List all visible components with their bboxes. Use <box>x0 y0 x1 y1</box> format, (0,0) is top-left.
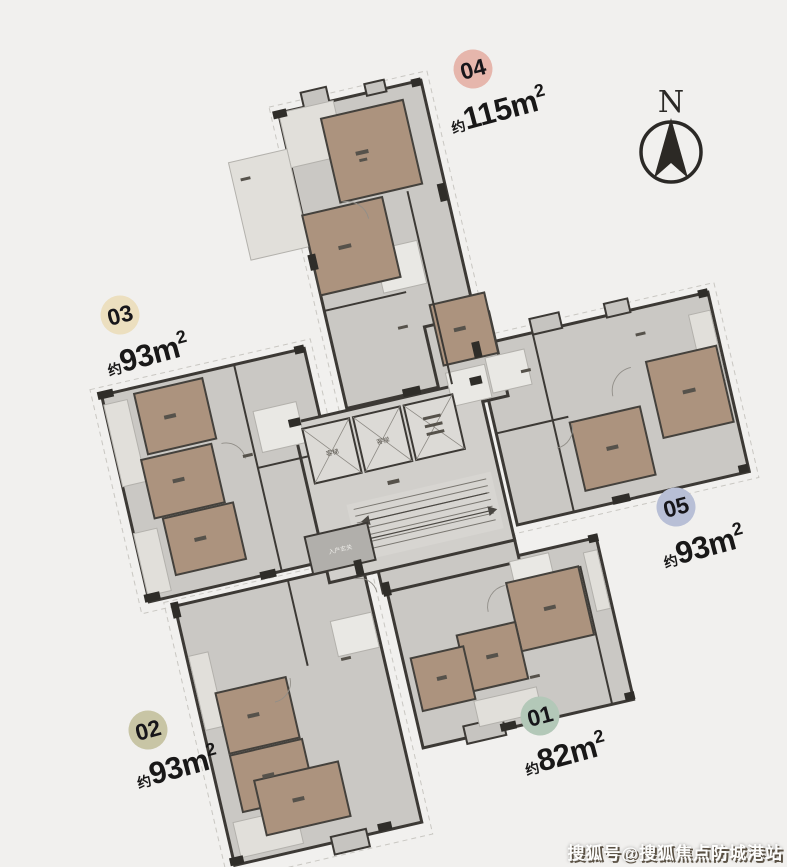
unit-label-03: 03 约93m2 <box>90 281 193 383</box>
floor-plan-page: 客梯 客梯 入户玄关 <box>0 0 787 867</box>
bath-room <box>253 402 305 453</box>
unit-label-04: 04 约115m2 <box>433 34 551 140</box>
watermark: 搜狐号@搜狐焦点防城港站 <box>567 839 783 864</box>
unit-04-bedroom <box>321 100 422 203</box>
unit-03-area: 约93m2 <box>102 326 193 383</box>
north-label: N <box>658 85 684 120</box>
north-compass: N <box>641 85 701 182</box>
compass-needle-icon <box>654 118 688 178</box>
floor-plan-svg: 客梯 客梯 入户玄关 <box>0 0 787 867</box>
unit-04-area: 约115m2 <box>445 80 551 141</box>
unit-05-area: 约93m2 <box>658 518 749 575</box>
